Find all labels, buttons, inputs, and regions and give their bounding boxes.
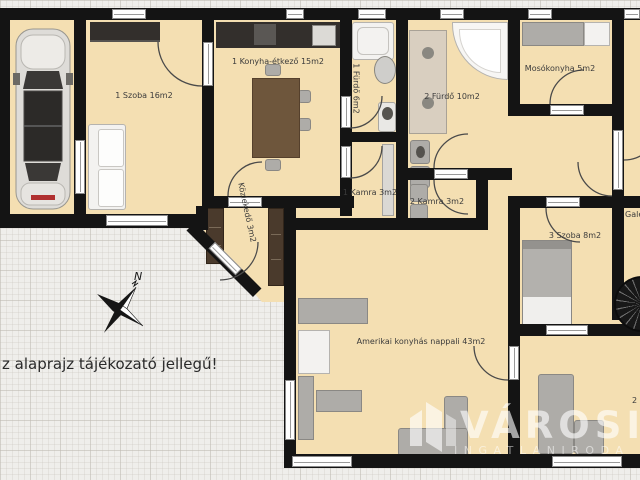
room-label-galeria: Galéria	[625, 210, 640, 219]
room-label-furdo2: 2 Fürdő 10m2	[402, 92, 502, 101]
floor-plan: 1 Szoba 16m2 1 Konyha-étkező 15m2 1 Fürd…	[0, 0, 640, 480]
room-label-szoba1: 1 Szoba 16m2	[98, 91, 190, 100]
door-arc	[434, 134, 468, 168]
room-label-furdo1: 1 Fürdő 6m2	[352, 59, 361, 119]
door-arc	[624, 126, 640, 160]
room-label-nappali: Amerikai konyhás nappali 43m2	[341, 337, 501, 346]
compass-rose: N	[86, 268, 160, 342]
room-label-kamra1: 1 Kamra 3m2	[330, 188, 410, 197]
room-label-konyha: 1 Konyha-étkező 15m2	[216, 57, 340, 66]
door-arc	[350, 146, 382, 178]
door-arc	[578, 162, 612, 196]
door-arc	[158, 42, 202, 86]
room-label-kamra2: 2 Kamra 3m2	[397, 197, 477, 206]
disclaimer-text: z alaprajz tájékozató jellegű!	[2, 355, 218, 373]
room-label-szoba2-partial: 2 Szoba	[632, 396, 640, 405]
door-arc	[550, 70, 584, 104]
door-arc	[474, 346, 508, 380]
room-label-mosokonyha: Mosókonyha 5m2	[510, 64, 610, 73]
room-label-szoba3: 3 Szoba 8m2	[525, 231, 625, 240]
